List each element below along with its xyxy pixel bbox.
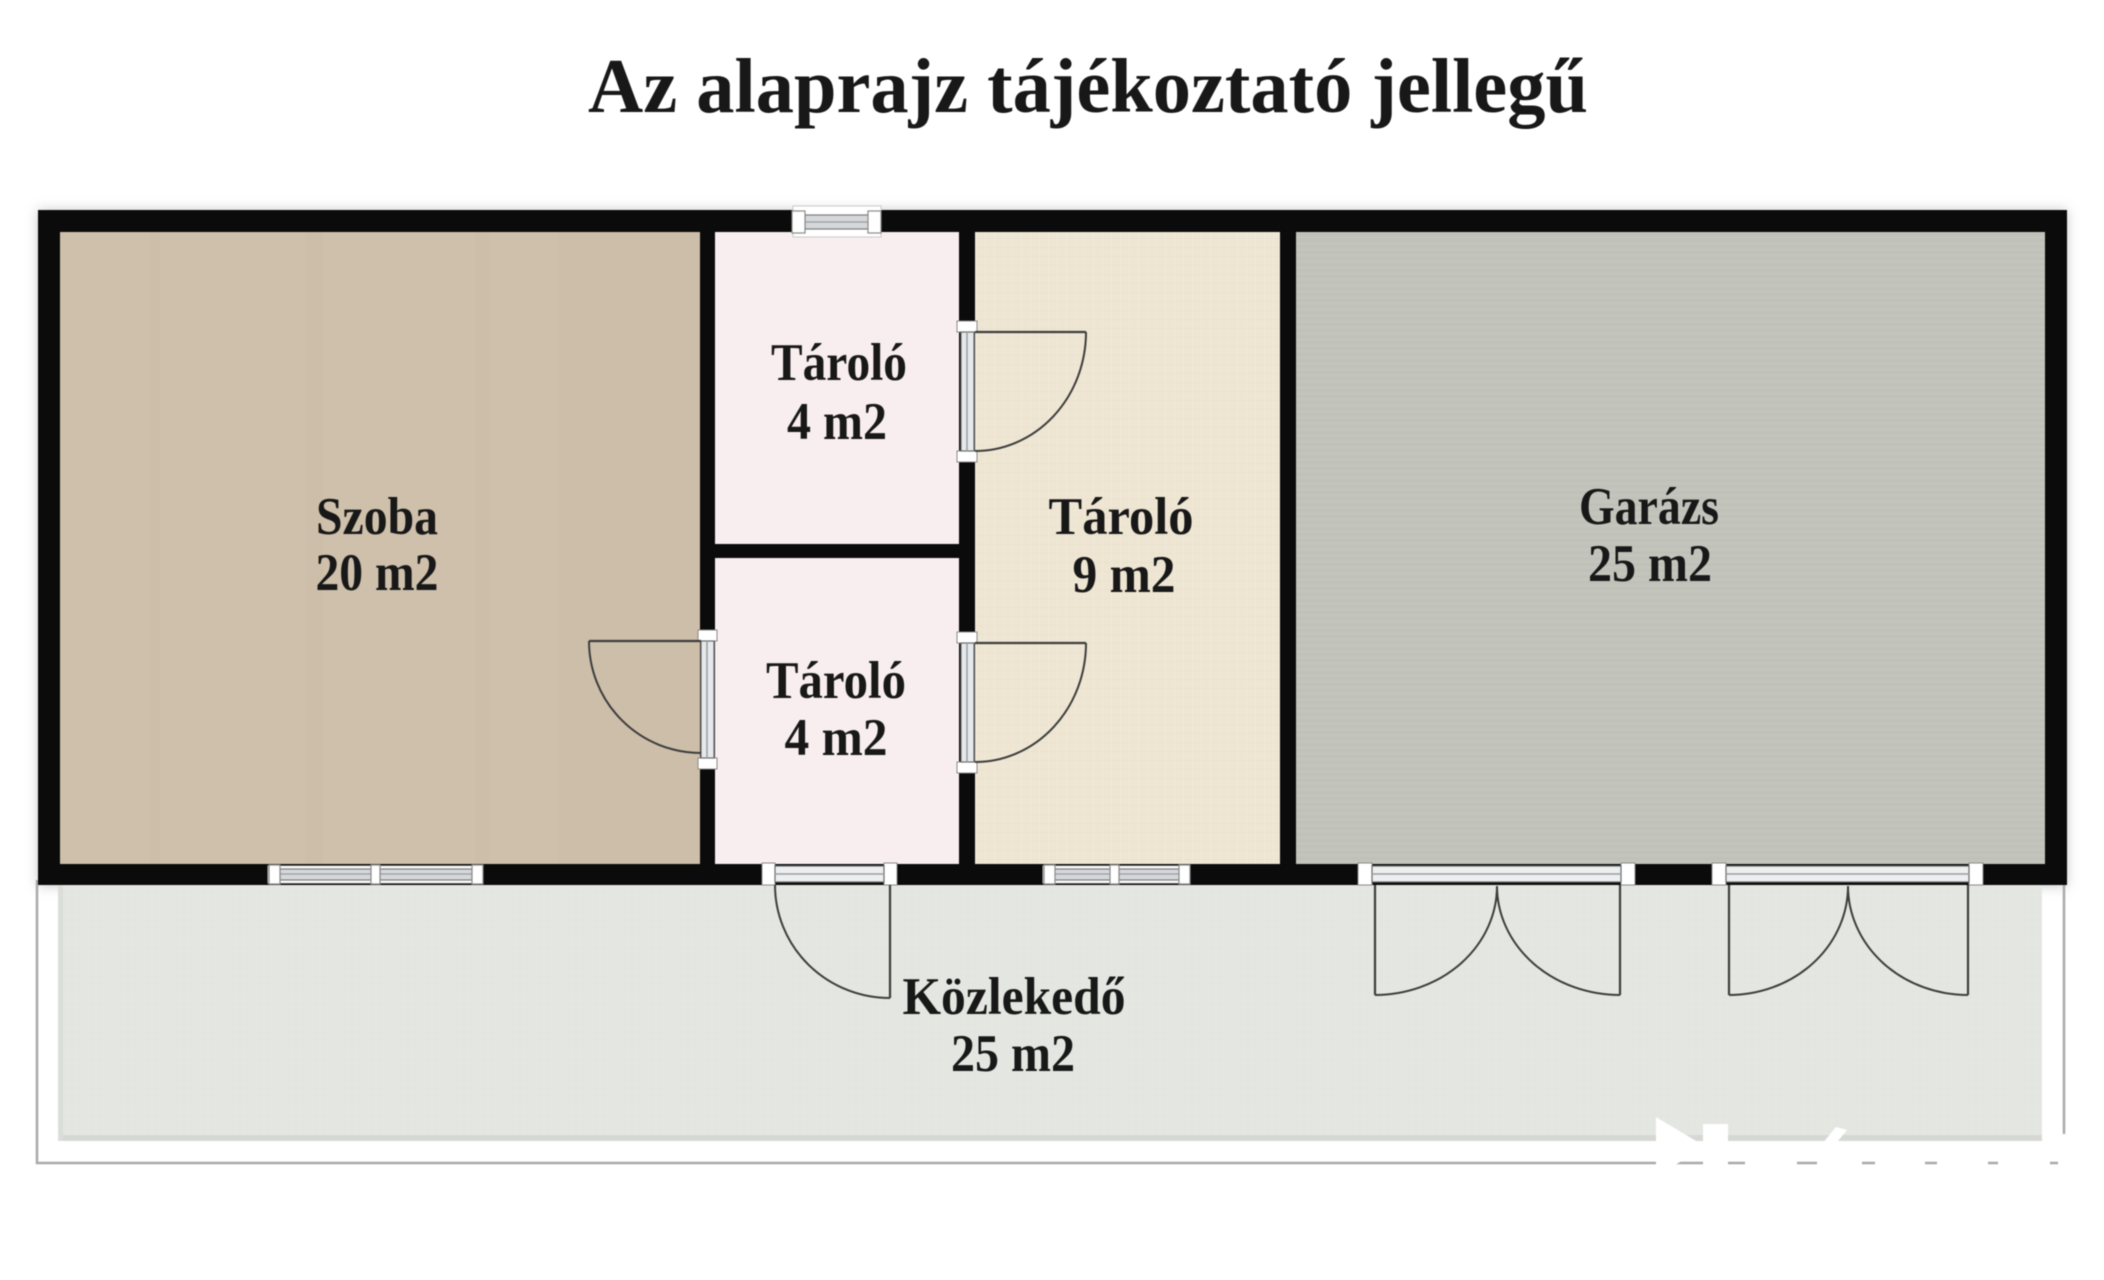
svg-text:25 m2: 25 m2	[951, 1025, 1075, 1083]
svg-text:9 m2: 9 m2	[1073, 546, 1176, 604]
svg-text:Szoba: Szoba	[316, 488, 438, 546]
svg-text:20 m2: 20 m2	[316, 544, 439, 602]
svg-text:Garázs: Garázs	[1579, 478, 1719, 536]
svg-text:4 m2: 4 m2	[785, 709, 888, 767]
svg-text:Tároló: Tároló	[1049, 488, 1194, 546]
svg-text:Az alaprajz tájékoztató jelleg: Az alaprajz tájékoztató jellegű	[588, 43, 1588, 129]
svg-text:4 m2: 4 m2	[787, 393, 887, 451]
svg-text:25 m2: 25 m2	[1588, 535, 1712, 593]
svg-text:Tároló: Tároló	[766, 652, 906, 710]
svg-text:Tároló: Tároló	[771, 334, 907, 392]
svg-text:Közlekedő: Közlekedő	[903, 968, 1126, 1026]
